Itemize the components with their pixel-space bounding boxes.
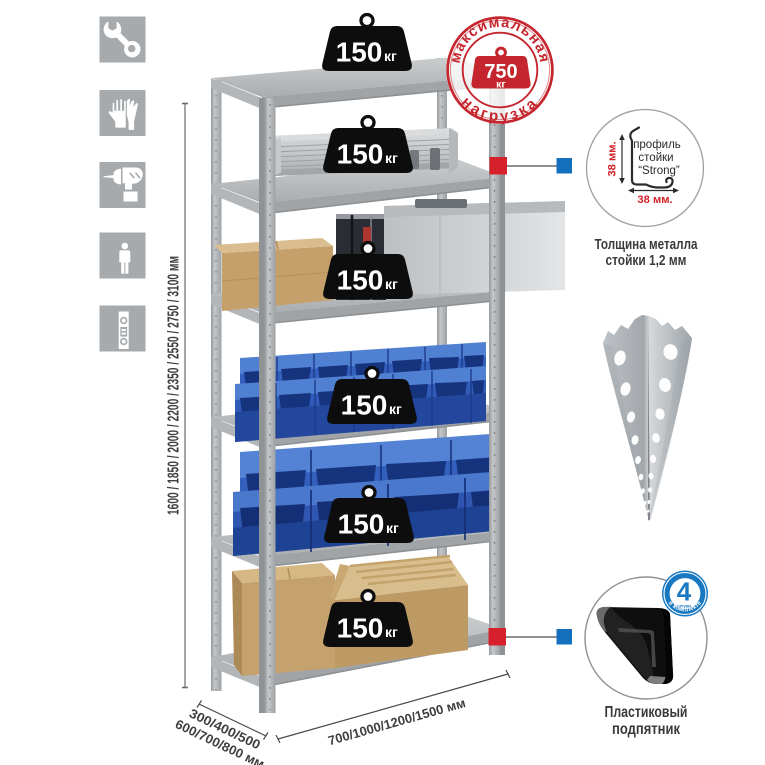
svg-text:Пластиковый: Пластиковый — [605, 704, 688, 721]
svg-text:кг: кг — [386, 520, 399, 536]
svg-text:1600 / 1850 / 2000 / 2200 / 23: 1600 / 1850 / 2000 / 2200 / 2350 / 2550 … — [166, 256, 183, 515]
svg-text:кг: кг — [385, 150, 398, 166]
svg-text:стойки: стойки — [638, 152, 673, 164]
svg-text:150: 150 — [341, 390, 388, 421]
svg-text:подпятник: подпятник — [612, 721, 680, 738]
svg-text:150: 150 — [336, 37, 383, 68]
svg-text:кг: кг — [385, 276, 398, 292]
svg-text:“Strong”: “Strong” — [638, 165, 680, 177]
svg-text:кг: кг — [389, 401, 402, 417]
svg-text:150: 150 — [337, 265, 384, 296]
svg-text:38 мм.: 38 мм. — [637, 194, 672, 206]
svg-text:кг: кг — [384, 48, 397, 64]
svg-text:Толщина металла: Толщина металла — [595, 237, 699, 253]
svg-text:4: 4 — [677, 577, 692, 607]
svg-text:кг: кг — [385, 624, 398, 640]
svg-text:150: 150 — [337, 613, 384, 644]
svg-text:38 мм.: 38 мм. — [607, 141, 619, 176]
svg-text:стойки 1,2 мм: стойки 1,2 мм — [606, 253, 687, 269]
svg-text:150: 150 — [338, 509, 385, 540]
svg-text:кг: кг — [496, 79, 506, 91]
svg-text:профиль: профиль — [633, 139, 681, 151]
svg-text:150: 150 — [337, 139, 384, 170]
